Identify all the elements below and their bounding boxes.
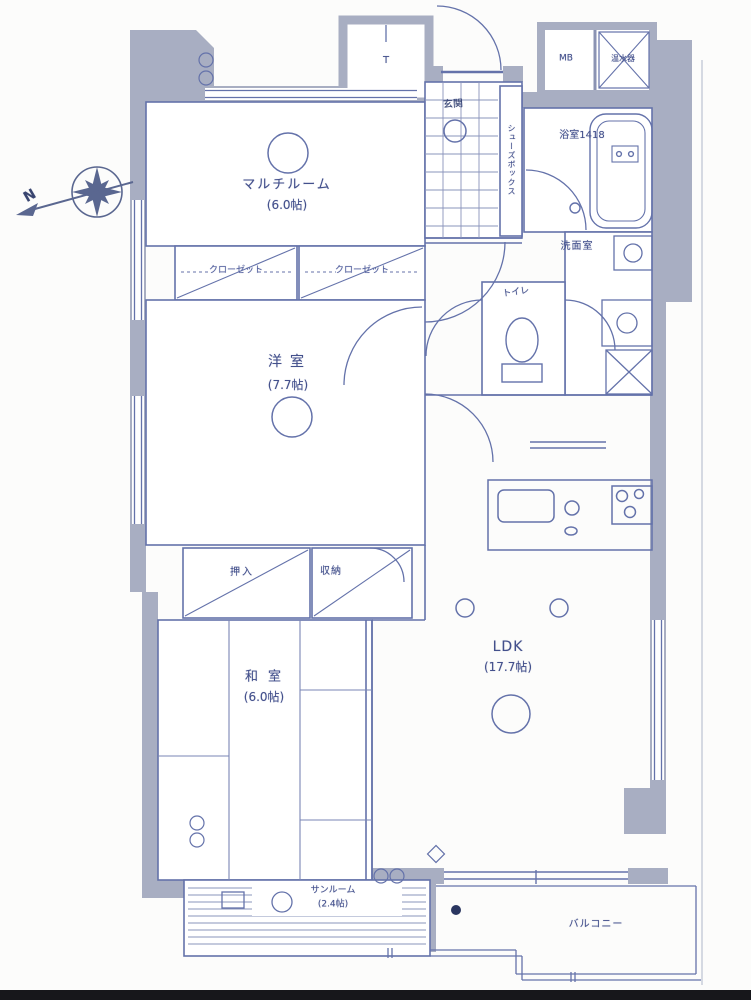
sunroom-label: サンルーム bbox=[311, 887, 356, 896]
multi-room-size: (6.0帖) bbox=[267, 199, 307, 211]
floorplan: マルチルーム (6.0帖) クローゼット クローゼット 洋室 (7.7帖) 押入… bbox=[0, 0, 751, 1000]
kitchen-counter bbox=[488, 480, 652, 550]
western-room-size: (7.7帖) bbox=[268, 379, 308, 391]
meter-box bbox=[541, 26, 653, 94]
sunroom-size: (2.4帖) bbox=[318, 901, 348, 910]
balcony-label: バルコニー bbox=[569, 920, 624, 930]
floorplan-drawing bbox=[0, 0, 751, 1000]
balcony-drain-dot bbox=[451, 905, 461, 915]
toilet-area bbox=[482, 282, 565, 395]
trunk-room-label: T bbox=[383, 56, 389, 66]
north-arrowhead bbox=[16, 203, 38, 216]
toilet-door-arc bbox=[426, 300, 482, 356]
storage-unit-label: 収納 bbox=[320, 567, 342, 577]
closet-left-label: クローゼット bbox=[209, 267, 263, 276]
entrance-label: 玄関 bbox=[443, 99, 463, 110]
meter-box-label: MB bbox=[559, 55, 573, 64]
bathroom-label: 浴室1418 bbox=[559, 131, 604, 141]
closet-right-label: クローゼット bbox=[335, 267, 389, 276]
bathroom-area bbox=[524, 108, 652, 232]
ldk-label: LDK bbox=[493, 640, 524, 654]
ldk-door-arc bbox=[425, 394, 493, 462]
western-room-label: 洋室 bbox=[268, 355, 312, 369]
multi-room-label: マルチルーム bbox=[242, 179, 332, 192]
washroom-label: 洗面室 bbox=[561, 242, 594, 252]
faucet bbox=[565, 501, 579, 515]
futon-closet-label: 押入 bbox=[230, 568, 254, 578]
multi-room-area bbox=[146, 102, 425, 246]
ldk-size: (17.7帖) bbox=[484, 661, 532, 673]
water-heater-label: 温水器 bbox=[611, 55, 635, 63]
kitchen-sink bbox=[498, 490, 554, 522]
japanese-room-label: 和室 bbox=[245, 671, 291, 684]
japanese-room-size: (6.0帖) bbox=[244, 691, 284, 703]
washroom-area bbox=[565, 232, 652, 395]
bottom-scan-bar bbox=[0, 990, 751, 1000]
front-door-arc bbox=[437, 6, 501, 70]
western-room-area bbox=[146, 300, 425, 545]
shoe-box-label: シューズボックス bbox=[507, 124, 515, 196]
